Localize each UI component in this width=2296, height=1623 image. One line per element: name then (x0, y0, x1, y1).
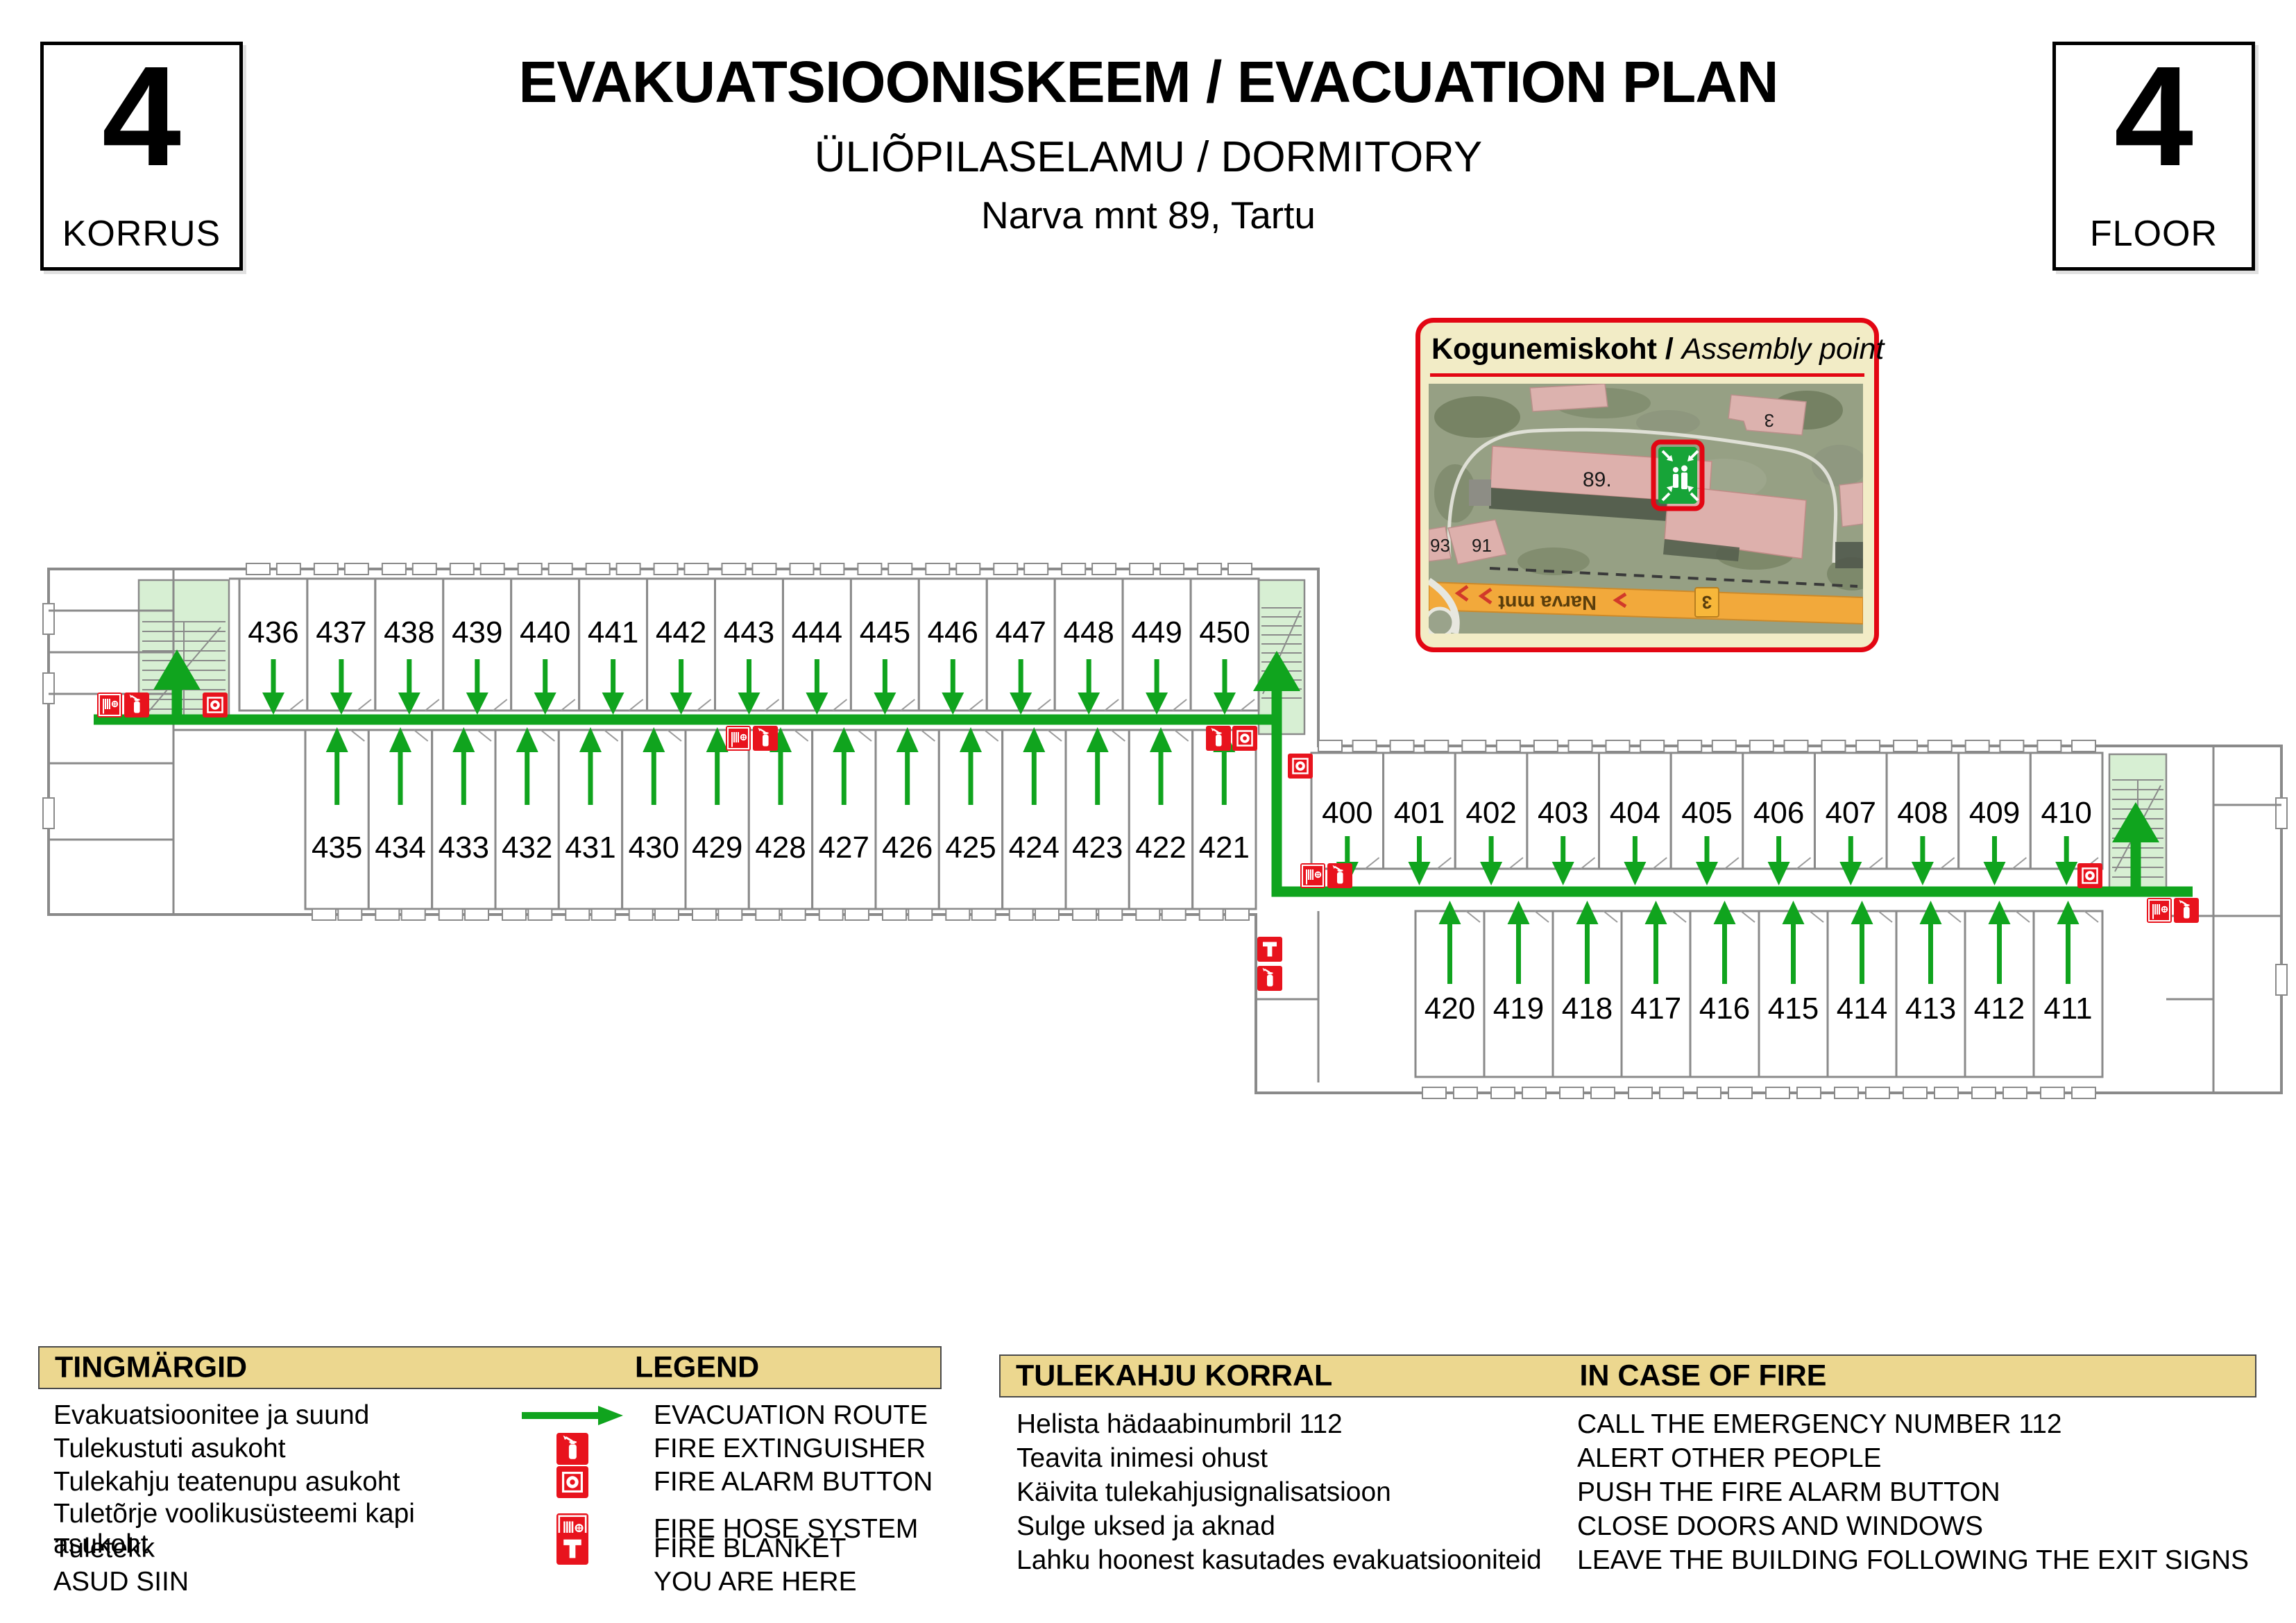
legend-row: Evakuatsioonitee ja suundEVACUATION ROUT… (38, 1399, 942, 1432)
room-number: 422 (1135, 831, 1186, 865)
instruction-en: PUSH THE FIRE ALARM BUTTON (1577, 1477, 2256, 1508)
room-number: 441 (588, 615, 638, 649)
map-label-93: 93 (1430, 535, 1450, 556)
assembly-title-et: Kogunemiskoht (1431, 332, 1657, 366)
room-number: 403 (1538, 796, 1588, 830)
instruction-en: LEAVE THE BUILDING FOLLOWING THE EXIT SI… (1577, 1545, 2256, 1576)
instruction-row: Käivita tulekahjusignalisatsioonPUSH THE… (999, 1475, 2256, 1509)
room-number: 434 (375, 831, 425, 865)
fire-hose-icon (2147, 898, 2172, 923)
instruction-et: Lahku hoonest kasutades evakuatsioonitei… (1017, 1545, 1577, 1576)
room-number: 417 (1631, 992, 1681, 1026)
room-number: 405 (1681, 796, 1732, 830)
room-number: 419 (1493, 992, 1544, 1026)
floor-label-en: FLOOR (2090, 213, 2218, 255)
room-number: 449 (1131, 615, 1182, 649)
fire-blanket-legend-icon (511, 1533, 633, 1565)
floor-badge-floor: 4 FLOOR (2052, 42, 2255, 271)
room-number: 407 (1826, 796, 1876, 830)
instruction-row: Helista hädaabinumbril 112CALL THE EMERG… (999, 1407, 2256, 1441)
room-number: 443 (724, 615, 774, 649)
fire-extinguisher-icon (753, 726, 778, 751)
assembly-point-icon (1653, 442, 1702, 509)
room-number: 418 (1562, 992, 1613, 1026)
instruction-row: Lahku hoonest kasutades evakuatsioonitei… (999, 1543, 2256, 1577)
legend-label-en: EVACUATION ROUTE (633, 1400, 942, 1431)
room-number: 400 (1322, 796, 1372, 830)
route-arrow-legend-icon (511, 1402, 633, 1429)
legend-header-bar: TINGMÄRGID LEGEND (38, 1346, 942, 1389)
map-label-3: 3 (1764, 410, 1774, 431)
room-number: 450 (1199, 615, 1250, 649)
room-number: 444 (792, 615, 842, 649)
assembly-point-title: Kogunemiskoht / Assembly point (1429, 327, 1866, 373)
room-number: 404 (1610, 796, 1660, 830)
room-number: 408 (1897, 796, 1948, 830)
instruction-rows: Helista hädaabinumbril 112CALL THE EMERG… (999, 1407, 2256, 1577)
room-number: 409 (1969, 796, 2020, 830)
instruction-et: Helista hädaabinumbril 112 (1017, 1409, 1577, 1440)
legend-label-en: FIRE ALARM BUTTON (633, 1467, 942, 1497)
instruction-en: ALERT OTHER PEOPLE (1577, 1443, 2256, 1474)
room-number: 423 (1072, 831, 1123, 865)
room-number: 439 (452, 615, 502, 649)
legend-label-et: Tuletekk (53, 1533, 511, 1564)
room-number: 420 (1425, 992, 1475, 1026)
room-number: 440 (520, 615, 570, 649)
legend-row: ASUD SIINYOU ARE HERE (38, 1565, 942, 1599)
fire-extinguisher-icon (2174, 898, 2199, 923)
room-number: 445 (860, 615, 910, 649)
floor-number: 4 (102, 49, 181, 185)
page-title: EVAKUATSIOONISKEEM / EVACUATION PLAN (319, 49, 1978, 116)
assembly-map: 89. 3 91 93 Narva mnt 3 (1429, 384, 1863, 634)
room-number: 431 (565, 831, 615, 865)
room-number: 413 (1905, 992, 1956, 1026)
rooms (239, 579, 2102, 1077)
instruction-en: CALL THE EMERGENCY NUMBER 112 (1577, 1409, 2256, 1440)
legend-label-en: FIRE BLANKET (633, 1533, 942, 1564)
fire-blanket-icon (1257, 937, 1282, 962)
fire-hose-icon (726, 726, 751, 751)
fire-alarm-icon (203, 692, 228, 717)
legend-label-et: Tulekahju teatenupu asukoht (53, 1467, 511, 1497)
legend-row: Tulekahju teatenupu asukohtFIRE ALARM BU… (38, 1465, 942, 1499)
room-number: 436 (248, 615, 298, 649)
room-number: 428 (755, 831, 806, 865)
fire-alarm-icon (1232, 726, 1257, 751)
fire-instructions-section: TULEKAHJU KORRAL IN CASE OF FIRE Helista… (999, 1354, 2256, 1577)
room-number: 421 (1199, 831, 1250, 865)
room-number: 416 (1699, 992, 1750, 1026)
map-label-91: 91 (1472, 535, 1492, 556)
fire-extinguisher-icon (124, 692, 149, 717)
header-titles: EVAKUATSIOONISKEEM / EVACUATION PLAN ÜLI… (319, 49, 1978, 237)
room-number: 438 (384, 615, 434, 649)
room-number: 429 (692, 831, 742, 865)
instructions-header-en: IN CASE OF FIRE (1579, 1359, 1826, 1393)
room-number: 415 (1768, 992, 1819, 1026)
legend-header-et: TINGMÄRGID (55, 1351, 247, 1385)
page-subtitle: ÜLIÕPILASELAMU / DORMITORY (319, 133, 1978, 182)
instruction-en: CLOSE DOORS AND WINDOWS (1577, 1511, 2256, 1542)
assembly-title-en: Assembly point (1682, 332, 1885, 366)
fire-extinguisher-icon (1206, 726, 1231, 751)
instruction-et: Sulge uksed ja aknad (1017, 1511, 1577, 1542)
fire-extinguisher-icon (1257, 966, 1282, 991)
map-road-badge: 3 (1702, 592, 1712, 613)
evacuation-plan-page: 4364374384394404414424434444454464474484… (0, 0, 2296, 1623)
room-number: 447 (995, 615, 1046, 649)
instruction-et: Teavita inimesi ohust (1017, 1443, 1577, 1474)
room-number: 402 (1465, 796, 1516, 830)
room-number: 401 (1394, 796, 1445, 830)
room-number: 412 (1974, 992, 2025, 1026)
room-number: 432 (502, 831, 552, 865)
room-number: 406 (1753, 796, 1804, 830)
legend-section: TINGMÄRGID LEGEND Evakuatsioonitee ja su… (38, 1346, 942, 1599)
map-road-name: Narva mnt (1498, 591, 1597, 613)
fire-hose-icon (97, 692, 122, 717)
assembly-title-rule (1430, 373, 1864, 377)
assembly-title-sep: / (1657, 332, 1682, 366)
fire-hose-icon (1300, 863, 1325, 888)
legend-label-et: Evakuatsioonitee ja suund (53, 1400, 511, 1431)
page-address: Narva mnt 89, Tartu (319, 193, 1978, 237)
instruction-row: Teavita inimesi ohustALERT OTHER PEOPLE (999, 1441, 2256, 1475)
floor-badge-korrus: 4 KORRUS (40, 42, 243, 271)
room-number: 427 (819, 831, 869, 865)
fire-alarm-legend-icon (511, 1466, 633, 1498)
fire-alarm-icon (1288, 754, 1313, 779)
instruction-row: Sulge uksed ja aknadCLOSE DOORS AND WIND… (999, 1509, 2256, 1543)
legend-rows: Evakuatsioonitee ja suundEVACUATION ROUT… (38, 1399, 942, 1599)
fire-extinguisher-legend-icon (511, 1433, 633, 1465)
room-number: 430 (629, 831, 679, 865)
legend-label-en: YOU ARE HERE (633, 1567, 942, 1597)
room-number: 442 (656, 615, 706, 649)
room-number: 414 (1837, 992, 1887, 1026)
room-number: 426 (882, 831, 933, 865)
room-number: 410 (2041, 796, 2091, 830)
fire-extinguisher-icon (1327, 863, 1352, 888)
fire-alarm-icon (2077, 863, 2102, 888)
map-label-89: 89. (1583, 468, 1612, 491)
legend-row: Tuletõrje voolikusüsteemi kapi asukohtFI… (38, 1499, 942, 1532)
instructions-header-et: TULEKAHJU KORRAL (1016, 1359, 1332, 1393)
legend-label-et: Tulekustuti asukoht (53, 1434, 511, 1464)
room-number: 446 (928, 615, 978, 649)
floor-label-et: KORRUS (62, 213, 221, 255)
instruction-et: Käivita tulekahjusignalisatsioon (1017, 1477, 1577, 1508)
room-number: 435 (312, 831, 362, 865)
legend-header-en: LEGEND (635, 1351, 759, 1385)
instructions-header-bar: TULEKAHJU KORRAL IN CASE OF FIRE (999, 1354, 2256, 1397)
room-number: 448 (1063, 615, 1114, 649)
legend-row: Tulekustuti asukohtFIRE EXTINGUISHER (38, 1432, 942, 1465)
room-number: 424 (1009, 831, 1060, 865)
legend-row: TuletekkFIRE BLANKET (38, 1532, 942, 1565)
legend-label-et: ASUD SIIN (53, 1567, 511, 1597)
legend-label-en: FIRE EXTINGUISHER (633, 1434, 942, 1464)
room-number: 433 (439, 831, 489, 865)
room-number: 425 (945, 831, 996, 865)
floor-number: 4 (2114, 49, 2193, 185)
room-number: 437 (316, 615, 366, 649)
assembly-point-inset: Kogunemiskoht / Assembly point (1415, 318, 1879, 652)
room-number: 411 (2043, 992, 2092, 1026)
